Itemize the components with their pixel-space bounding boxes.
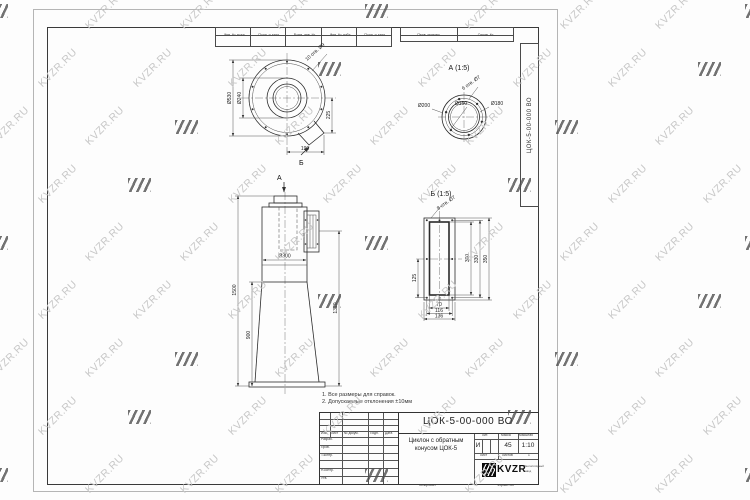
dim-dia-180: Ø180 [491,101,503,107]
top-holes-note: 10 отв. Ø9 [304,42,326,63]
view-b-title: Б (1:5) [431,191,452,198]
dim-136: 136 [435,314,444,320]
dim-350: 350 [483,255,489,264]
dim-125: 125 [412,274,418,283]
dim-inner-diameter: Ø240 [237,92,243,104]
dim-330: 330 [474,255,480,264]
dim-right-height: 1320 [333,302,339,313]
dim-300: 300 [465,254,471,263]
dim-cylinder-diameter: Ø300 [278,254,290,260]
section-b-label: Б [299,160,304,167]
dim-dia-200: Ø200 [418,103,430,109]
view-a: А (1:5) Ø200 Ø150 Ø180 6 отв. Ø7 [418,65,503,142]
view-a-holes-note: 6 отв. Ø7 [461,74,482,91]
view-a-title: А (1:5) [448,65,469,72]
dim-225: 225 [326,111,332,120]
top-view: 10 отв. Ø9 Ø530 Ø240 225 190 Б А [227,42,336,192]
dim-dia-150: Ø150 [455,101,467,107]
view-b: Б (1:5) 8 отв. Ø7 300 330 350 [412,191,492,321]
section-a-label: А [277,175,282,182]
drawing-canvas: Инв. № подл. Подп. и дата Взам. инв. № И… [0,0,750,500]
dim-outer-diameter: Ø530 [227,92,233,104]
dim-total-height: 1500 [232,284,238,295]
drawing-linework: 10 отв. Ø9 Ø530 Ø240 225 190 Б А [0,0,750,500]
dim-cone-height: 900 [246,331,252,340]
front-view: Ø300 1500 900 1320 [232,192,342,394]
